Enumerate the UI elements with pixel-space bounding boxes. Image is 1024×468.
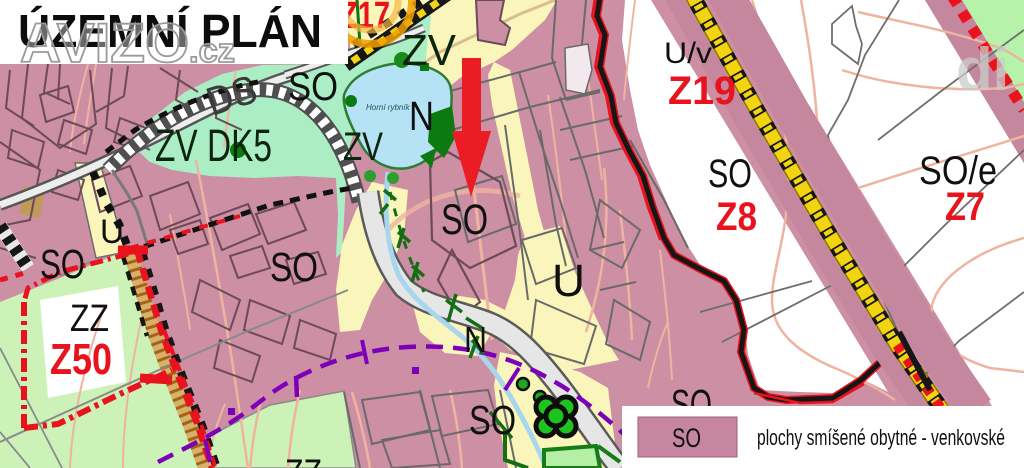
svg-text:SO: SO: [708, 152, 752, 196]
svg-text:Z50: Z50: [50, 335, 112, 384]
svg-text:SO: SO: [288, 65, 338, 109]
svg-text:Z19: Z19: [668, 69, 736, 113]
svg-text:SO: SO: [469, 397, 516, 443]
svg-text:SO: SO: [40, 241, 85, 287]
svg-text:ZV DK5: ZV DK5: [155, 120, 272, 171]
svg-text:U: U: [552, 255, 585, 306]
svg-text:U: U: [100, 213, 124, 251]
svg-text:Z8: Z8: [716, 195, 757, 239]
svg-text:N: N: [409, 93, 434, 139]
svg-text:ZV: ZV: [402, 26, 457, 75]
svg-text:U/v: U/v: [664, 37, 712, 70]
svg-text:Horní rybník: Horní rybník: [366, 103, 411, 112]
svg-text:N: N: [464, 319, 487, 360]
svg-text:di: di: [956, 36, 1009, 103]
svg-text:plochy smíšené obytné - venkov: plochy smíšené obytné - venkovské: [757, 425, 1005, 450]
svg-text:ZZ: ZZ: [70, 298, 109, 340]
svg-text:ZZ: ZZ: [285, 452, 322, 468]
svg-text:SO: SO: [672, 423, 701, 453]
svg-text:Z7: Z7: [945, 185, 985, 229]
svg-text:SO: SO: [270, 244, 318, 290]
svg-text:SO: SO: [441, 196, 488, 244]
svg-text:ZV: ZV: [343, 125, 383, 169]
